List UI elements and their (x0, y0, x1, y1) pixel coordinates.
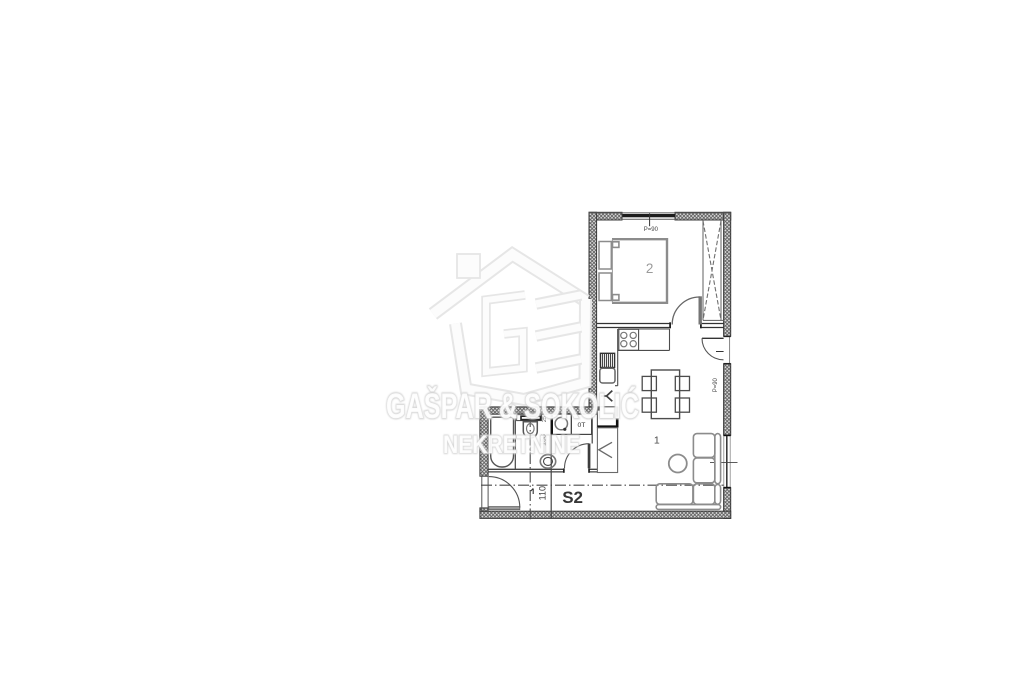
svg-text:P=90: P=90 (644, 227, 659, 233)
svg-text:110: 110 (537, 486, 547, 500)
svg-text:P=90: P=90 (713, 377, 719, 392)
svg-text:GAŠPAR & SOKOLIĆ: GAŠPAR & SOKOLIĆ (386, 386, 639, 426)
svg-text:2: 2 (646, 261, 654, 276)
svg-text:1: 1 (654, 434, 660, 446)
svg-text:S2: S2 (562, 488, 583, 507)
svg-text:NEKRETNINE: NEKRETNINE (443, 431, 580, 459)
